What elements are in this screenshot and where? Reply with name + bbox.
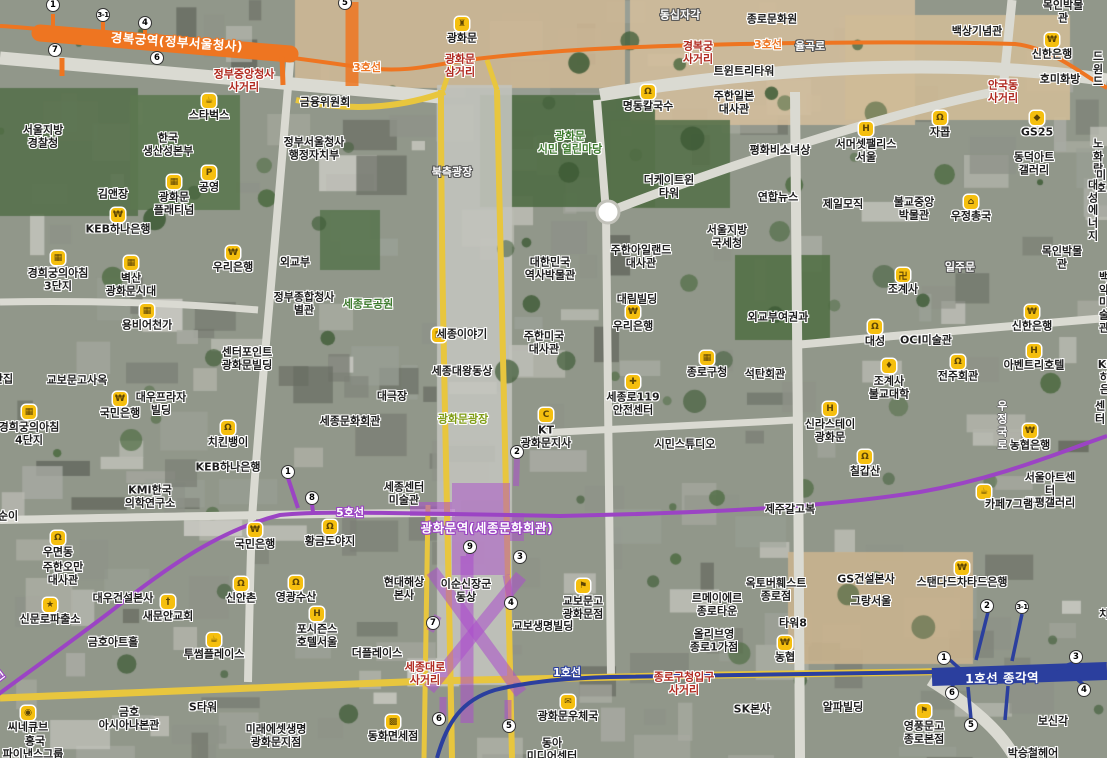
station-exit-number: 4 bbox=[138, 16, 152, 30]
minor-roads bbox=[0, 0, 1107, 758]
station-exit-number: 3-1 bbox=[96, 8, 110, 22]
station-exit-number: 3-1 bbox=[1015, 600, 1029, 614]
station-exit-number: 7 bbox=[426, 616, 440, 630]
station-name-label: 광화문역(세종문화회관) bbox=[421, 518, 553, 537]
subway-line-name-label: 3호선 bbox=[353, 59, 381, 75]
station-exit-number: 6 bbox=[432, 712, 446, 726]
subway-line-name-label: 3호선 bbox=[754, 36, 782, 52]
station-exit-number: 6 bbox=[945, 686, 959, 700]
station-exit-number: 3 bbox=[513, 550, 527, 564]
station-exit-number: 4 bbox=[1077, 683, 1091, 697]
station-exit-number: 7 bbox=[48, 43, 62, 57]
subway-line-name-label: 1호선 bbox=[553, 664, 581, 680]
station-exit-number: 2 bbox=[510, 445, 524, 459]
station-exit-number: 2 bbox=[980, 599, 994, 613]
station-exit-number: 5 bbox=[502, 719, 516, 733]
roundabout bbox=[597, 201, 619, 223]
station-exit-number: 1 bbox=[937, 651, 951, 665]
station-exit-number: 9 bbox=[463, 540, 477, 554]
station-name-label: 1호선 종각역 bbox=[965, 667, 1039, 687]
station-exit-number: 3 bbox=[1069, 650, 1083, 664]
map-overlay-vectors bbox=[0, 0, 1107, 758]
subway-line-name-label: 5호선 bbox=[336, 504, 364, 520]
station-exit-number: 6 bbox=[150, 51, 164, 65]
station-exit-number: 1 bbox=[281, 465, 295, 479]
map-viewport[interactable]: 서울지방 경찰청☕스타벅스한국 생산성본부금융위원회정부서울청사 행정자치부김앤… bbox=[0, 0, 1107, 758]
station-exit-number: 8 bbox=[305, 491, 319, 505]
station-exit-number: 4 bbox=[504, 596, 518, 610]
station-exit-number: 5 bbox=[964, 718, 978, 732]
